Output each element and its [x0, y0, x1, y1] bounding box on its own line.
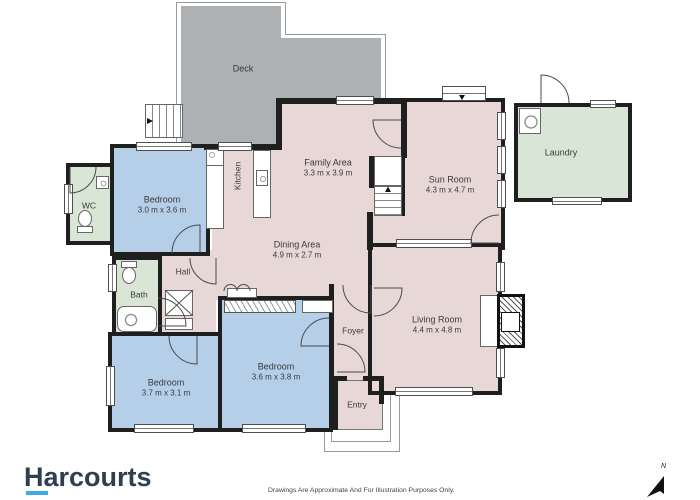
bedroom-closet	[302, 300, 333, 313]
window	[218, 142, 252, 151]
room-label-bedroom-top: Bedroom 3.0 m x 3.6 m	[138, 194, 186, 215]
room-label-kitchen: Kitchen	[233, 162, 244, 190]
wall	[401, 98, 407, 158]
deck-railing	[285, 34, 386, 35]
window	[590, 100, 616, 108]
window	[108, 264, 117, 292]
window	[136, 142, 192, 151]
north-arrow-icon	[647, 476, 664, 497]
harcourts-logo-underline	[26, 491, 48, 495]
window	[396, 239, 472, 248]
room-label-bedroom-mid: Bedroom 3.6 m x 3.8 m	[252, 361, 300, 382]
interior-stairs	[374, 186, 402, 216]
room-label-wc: WC	[82, 201, 96, 212]
sliding-door	[336, 96, 374, 105]
room-label-hall: Hall	[176, 267, 191, 278]
toilet-tank	[77, 226, 93, 233]
window	[134, 424, 194, 433]
window	[242, 424, 306, 433]
deck-railing	[385, 34, 386, 104]
room-label-living: Living Room 4.4 m x 4.8 m	[412, 314, 462, 335]
toilet-icon	[122, 267, 136, 284]
window	[496, 348, 505, 378]
wall	[276, 98, 282, 150]
toilet-icon	[78, 210, 92, 227]
fireplace-box	[501, 312, 520, 332]
disclaimer-text: Drawings Are Approximate And For Illustr…	[268, 487, 455, 494]
room-label-family: Family Area 3.3 m x 3.9 m	[304, 157, 352, 178]
hall-cabinet	[165, 318, 193, 330]
room-label-bedroom-left: Bedroom 3.7 m x 3.1 m	[142, 377, 190, 398]
room-deck-extension	[281, 38, 381, 103]
room-label-bath: Bath	[130, 290, 148, 301]
room-deck	[181, 6, 281, 148]
deck-railing	[176, 2, 286, 3]
room-label-laundry: Laundry	[545, 147, 578, 158]
window	[497, 112, 506, 140]
fireplace-hearth	[480, 295, 498, 347]
harcourts-logo: Harcourts	[24, 462, 152, 493]
north-label: N	[661, 463, 666, 470]
exterior-stairs	[145, 104, 183, 138]
window	[552, 197, 602, 205]
floor-plan: Deck WC Bedroom 3.0 m x 3.6 m Kitchen Fa…	[0, 0, 700, 500]
wall	[333, 378, 338, 430]
deck-railing	[285, 2, 286, 35]
wall	[329, 284, 334, 384]
bay-window	[442, 86, 486, 101]
window	[496, 262, 505, 292]
room-label-deck: Deck	[233, 63, 254, 74]
window	[497, 146, 506, 174]
hall-storage-box	[165, 290, 193, 316]
room-label-entry: Entry	[347, 400, 367, 411]
bathtub-icon	[117, 306, 157, 332]
dining-sliding-door	[227, 288, 257, 298]
window	[497, 180, 506, 208]
bedroom-wardrobe	[224, 300, 296, 313]
room-label-foyer: Foyer	[342, 326, 364, 337]
washing-machine-icon	[519, 108, 541, 134]
window	[64, 184, 73, 214]
room-label-sunroom: Sun Room 4.3 m x 4.7 m	[426, 174, 474, 195]
sink-icon	[256, 170, 268, 186]
window	[395, 387, 473, 396]
stair-closet	[374, 156, 402, 186]
room-family-area-top	[280, 102, 404, 150]
wall	[367, 212, 373, 250]
basin-icon	[96, 176, 109, 189]
stove-icon	[206, 149, 224, 166]
window	[106, 366, 115, 406]
room-label-dining: Dining Area 4.9 m x 2.7 m	[273, 239, 321, 260]
door-arc-laundry	[541, 75, 569, 103]
wall	[379, 378, 384, 404]
